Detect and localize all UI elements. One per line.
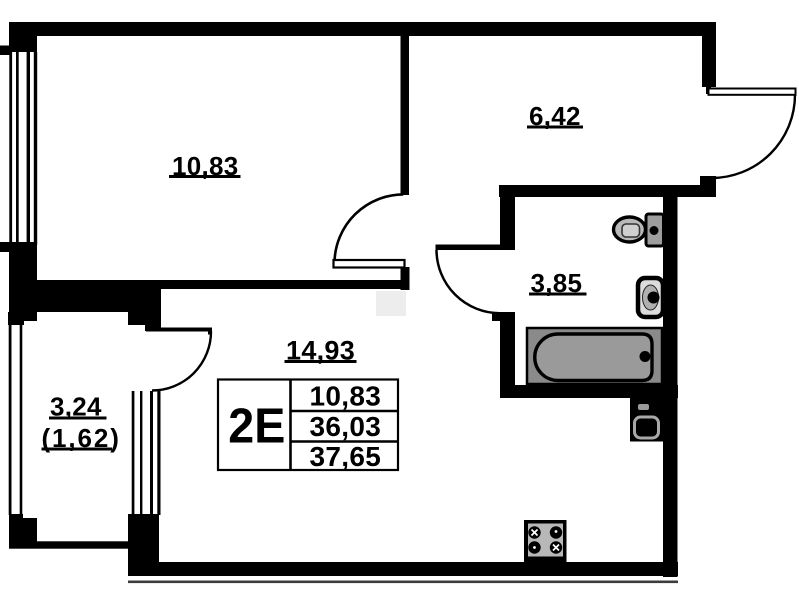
svg-text:10,83: 10,83 [310, 381, 382, 412]
svg-text:37,65: 37,65 [310, 441, 382, 472]
svg-text:36,03: 36,03 [310, 411, 382, 442]
svg-text:2E: 2E [228, 400, 285, 454]
